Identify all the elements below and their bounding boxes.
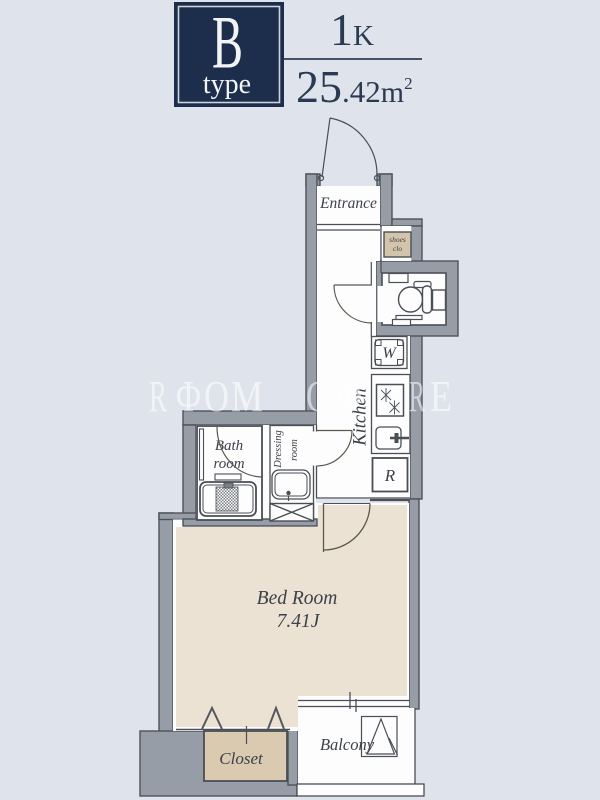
svg-text:clo: clo xyxy=(393,244,402,253)
svg-text:Closet: Closet xyxy=(219,749,264,768)
svg-text:R: R xyxy=(149,372,167,421)
svg-text:C: C xyxy=(306,372,328,421)
svg-text:Balcony: Balcony xyxy=(320,735,375,754)
svg-text:type: type xyxy=(203,69,251,100)
svg-text:Entrance: Entrance xyxy=(319,195,377,212)
svg-text:O: O xyxy=(204,372,229,421)
svg-text:M: M xyxy=(231,372,263,421)
svg-text:room: room xyxy=(213,456,244,472)
svg-text:R: R xyxy=(409,372,425,421)
svg-text:Dressing: Dressing xyxy=(273,430,284,469)
svg-text:E: E xyxy=(430,372,452,421)
svg-text:W: W xyxy=(382,345,397,362)
svg-text:Φ: Φ xyxy=(176,372,201,421)
svg-text:Φ: Φ xyxy=(336,372,362,421)
svg-text:R: R xyxy=(384,466,396,485)
svg-text:7.41J: 7.41J xyxy=(277,611,321,632)
svg-text:shoes: shoes xyxy=(389,235,406,244)
svg-text:room: room xyxy=(289,439,300,461)
svg-text:Bed Room: Bed Room xyxy=(257,588,338,609)
